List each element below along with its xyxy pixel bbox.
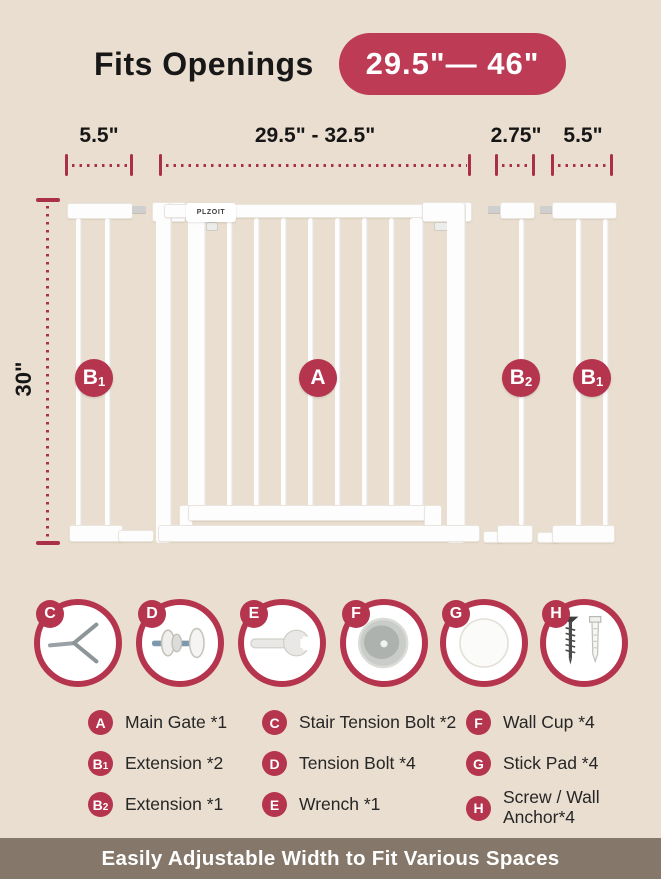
part-circle-g: G (440, 599, 528, 687)
b1-left-foot (69, 525, 123, 542)
legend-item-stair-tension-bolt: C Stair Tension Bolt *2 (262, 702, 466, 743)
part-letter-badge: F (342, 600, 370, 628)
b1-left-connector-pin (132, 206, 146, 213)
dim-label-right-b1: 5.5" (563, 124, 602, 148)
gate-frame-right-post (447, 203, 466, 543)
badge-sub: 2 (525, 374, 532, 389)
gate-door-right-stile (410, 218, 424, 511)
gate-door-bottom-rail (188, 505, 440, 521)
part-circle-e: E (238, 599, 326, 687)
dim-label-b2: 2.75" (491, 124, 542, 148)
legend-badge: H (466, 796, 491, 821)
size-range-pill: 29.5"— 46" (339, 33, 566, 95)
badge-letter: B (510, 366, 525, 390)
legend-badge: G (466, 751, 491, 776)
dim-tick (159, 154, 162, 176)
height-dim-tick-top (36, 198, 60, 202)
legend-badge: C (262, 710, 287, 735)
b1-right-foot (552, 525, 615, 543)
legend-badge: F (466, 710, 491, 735)
dim-tick (610, 154, 613, 176)
badge-sub: 1 (596, 374, 603, 389)
page-title: Fits Openings (94, 46, 314, 83)
badge-letter: A (310, 366, 325, 390)
b1-left-foot-step (118, 530, 154, 542)
brand-logo-tab: PLZOIT (186, 203, 236, 222)
legend-label: Screw / Wall Anchor*4 (503, 788, 631, 827)
parts-legend: A Main Gate *1 B1 Extension *2 B2 Extens… (88, 702, 661, 832)
legend-item-extension-b1: B1 Extension *2 (88, 743, 262, 784)
gate-latch (206, 222, 218, 231)
part-letter-badge: C (36, 600, 64, 628)
gate-right-latch (434, 222, 448, 231)
product-infographic: Fits Openings 29.5"— 46" 5.5" 29.5" - 32… (0, 0, 661, 879)
legend-badge: D (262, 751, 287, 776)
gate-bar (227, 218, 233, 511)
legend-label: Wall Cup *4 (503, 713, 595, 733)
legend-item-tension-bolt: D Tension Bolt *4 (262, 743, 466, 784)
brand-logo-text: PLZOIT (197, 209, 226, 216)
dim-dotted-line (166, 164, 467, 167)
gate-bar (335, 218, 341, 511)
part-circle-c: C (34, 599, 122, 687)
dim-tick (468, 154, 471, 176)
dim-dotted-line (72, 164, 130, 167)
gate-label-b2: B2 (502, 359, 540, 397)
legend-column-2: C Stair Tension Bolt *2 D Tension Bolt *… (262, 702, 466, 832)
gate-bottom-bar (158, 525, 480, 542)
gate-label-a: A (299, 359, 337, 397)
gate-bar (254, 218, 260, 511)
legend-label: Extension *2 (125, 754, 223, 774)
b2-foot (497, 525, 533, 543)
dim-label-main-gate: 29.5" - 32.5" (255, 124, 375, 148)
dim-label-height: 30" (11, 352, 37, 406)
legend-item-extension-b2: B2 Extension *1 (88, 784, 262, 825)
badge-letter: B (581, 366, 596, 390)
dim-tick (130, 154, 133, 176)
gate-label-b1-right: B1 (573, 359, 611, 397)
footer-banner-text: Easily Adjustable Width to Fit Various S… (102, 847, 560, 871)
size-range-text: 29.5"— 46" (366, 46, 540, 82)
dim-tick (495, 154, 498, 176)
legend-column-3: F Wall Cup *4 G Stick Pad *4 H Screw / W… (466, 702, 661, 832)
dim-dotted-line (558, 164, 609, 167)
b1-right-top-rail (552, 202, 617, 219)
dim-tick (551, 154, 554, 176)
b2-top-block (500, 202, 535, 219)
badge-letter: B (83, 366, 98, 390)
part-letter-badge: G (442, 600, 470, 628)
legend-item-main-gate: A Main Gate *1 (88, 702, 262, 743)
dim-tick (65, 154, 68, 176)
part-circle-f: F (340, 599, 428, 687)
part-circle-d: D (136, 599, 224, 687)
legend-item-screw-wall-anchor: H Screw / Wall Anchor*4 (466, 784, 661, 832)
dim-label-left-b1: 5.5" (79, 124, 118, 148)
part-letter-badge: H (542, 600, 570, 628)
legend-item-wrench: E Wrench *1 (262, 784, 466, 825)
part-letter-badge: E (240, 600, 268, 628)
gate-bar (362, 218, 368, 511)
legend-label: Wrench *1 (299, 795, 380, 815)
part-letter-badge: D (138, 600, 166, 628)
part-circle-h: H (540, 599, 628, 687)
footer-banner: Easily Adjustable Width to Fit Various S… (0, 838, 661, 879)
badge-sub: 1 (98, 374, 105, 389)
height-dim-tick-bottom (36, 541, 60, 545)
legend-badge: E (262, 792, 287, 817)
dim-tick (532, 154, 535, 176)
legend-label: Extension *1 (125, 795, 223, 815)
legend-label: Stair Tension Bolt *2 (299, 713, 456, 733)
legend-label: Main Gate *1 (125, 713, 227, 733)
height-dim-dotted-line (46, 206, 49, 538)
legend-item-stick-pad: G Stick Pad *4 (466, 743, 661, 784)
legend-label: Stick Pad *4 (503, 754, 598, 774)
legend-badge: B2 (88, 792, 113, 817)
dim-dotted-line (502, 164, 531, 167)
gate-bar (281, 218, 287, 511)
legend-item-wall-cup: F Wall Cup *4 (466, 702, 661, 743)
gate-hinge-stile (188, 218, 206, 516)
legend-column-1: A Main Gate *1 B1 Extension *2 B2 Extens… (88, 702, 262, 832)
legend-badge: A (88, 710, 113, 735)
gate-frame-left-post (156, 203, 172, 543)
b1-left-top-rail (67, 203, 133, 219)
legend-label: Tension Bolt *4 (299, 754, 416, 774)
gate-bar (389, 218, 395, 511)
gate-label-b1-left: B1 (75, 359, 113, 397)
legend-badge: B1 (88, 751, 113, 776)
